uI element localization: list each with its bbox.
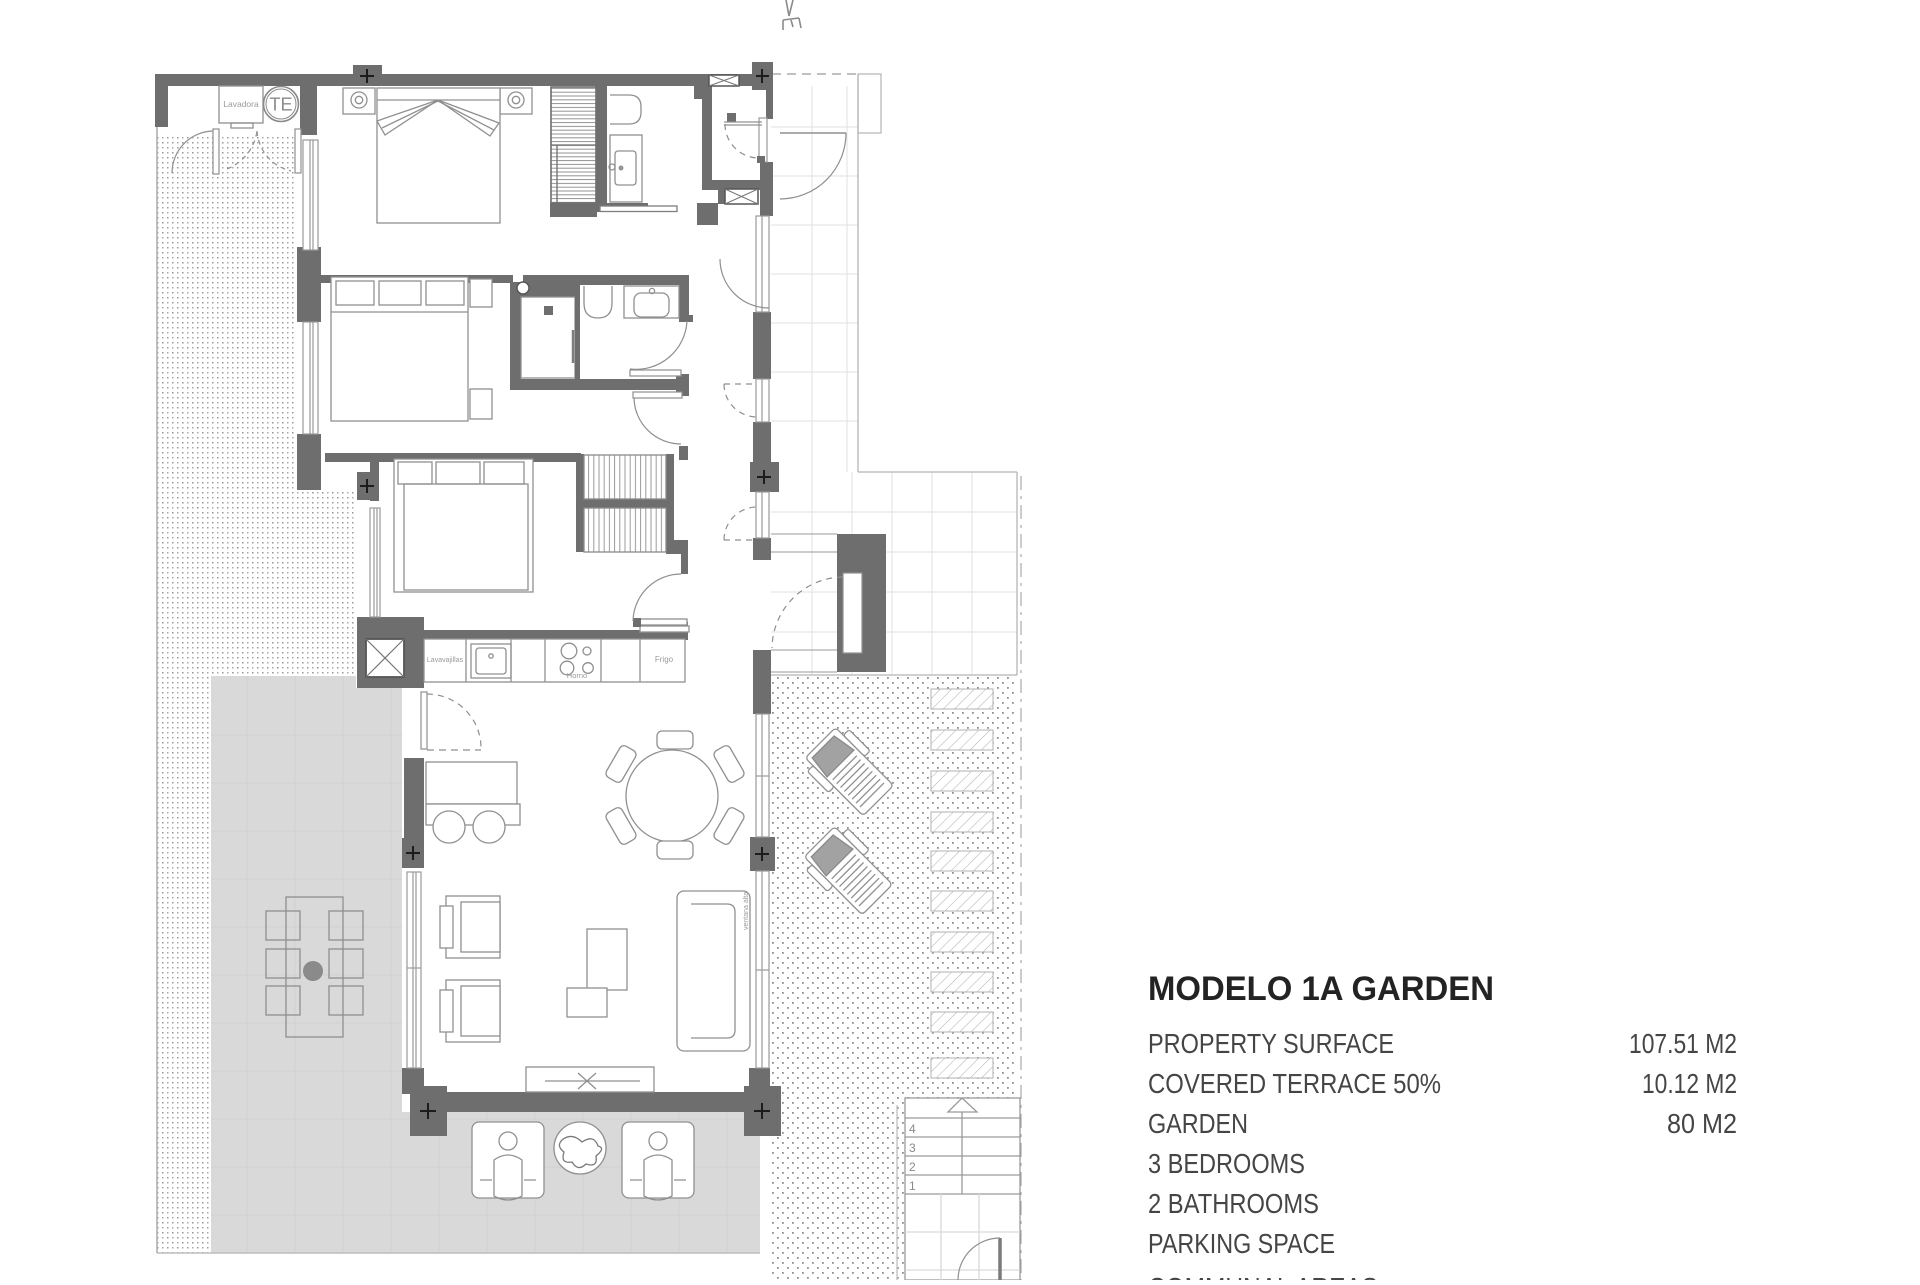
- svg-text:3: 3: [909, 1141, 916, 1155]
- svg-text:2 BATHROOMS: 2 BATHROOMS: [1148, 1188, 1319, 1219]
- svg-text:2: 2: [909, 1160, 916, 1174]
- svg-text:Horno: Horno: [567, 671, 587, 680]
- svg-text:80 M2: 80 M2: [1667, 1108, 1737, 1139]
- svg-text:PROPERTY SURFACE: PROPERTY SURFACE: [1148, 1028, 1394, 1059]
- svg-text:Lavavajillas: Lavavajillas: [427, 657, 464, 664]
- svg-text:GARDEN: GARDEN: [1148, 1108, 1248, 1139]
- svg-text:107.51 M2: 107.51 M2: [1629, 1028, 1737, 1059]
- svg-text:COMMUNAL AREAS: COMMUNAL AREAS: [1148, 1272, 1378, 1280]
- svg-text:MODELO 1A GARDEN: MODELO 1A GARDEN: [1148, 970, 1494, 1008]
- svg-text:10.12 M2: 10.12 M2: [1642, 1068, 1737, 1099]
- svg-text:4: 4: [909, 1122, 916, 1136]
- svg-text:COVERED TERRACE 50%: COVERED TERRACE 50%: [1148, 1068, 1441, 1099]
- svg-text:Frigo: Frigo: [655, 655, 674, 664]
- svg-text:Lavadora: Lavadora: [223, 99, 259, 109]
- svg-text:1: 1: [909, 1179, 916, 1193]
- svg-text:TE: TE: [269, 95, 292, 115]
- svg-text:3 BEDROOMS: 3 BEDROOMS: [1148, 1148, 1305, 1179]
- svg-text:ventana alta: ventana alta: [743, 892, 750, 930]
- svg-text:PARKING SPACE: PARKING SPACE: [1148, 1228, 1335, 1259]
